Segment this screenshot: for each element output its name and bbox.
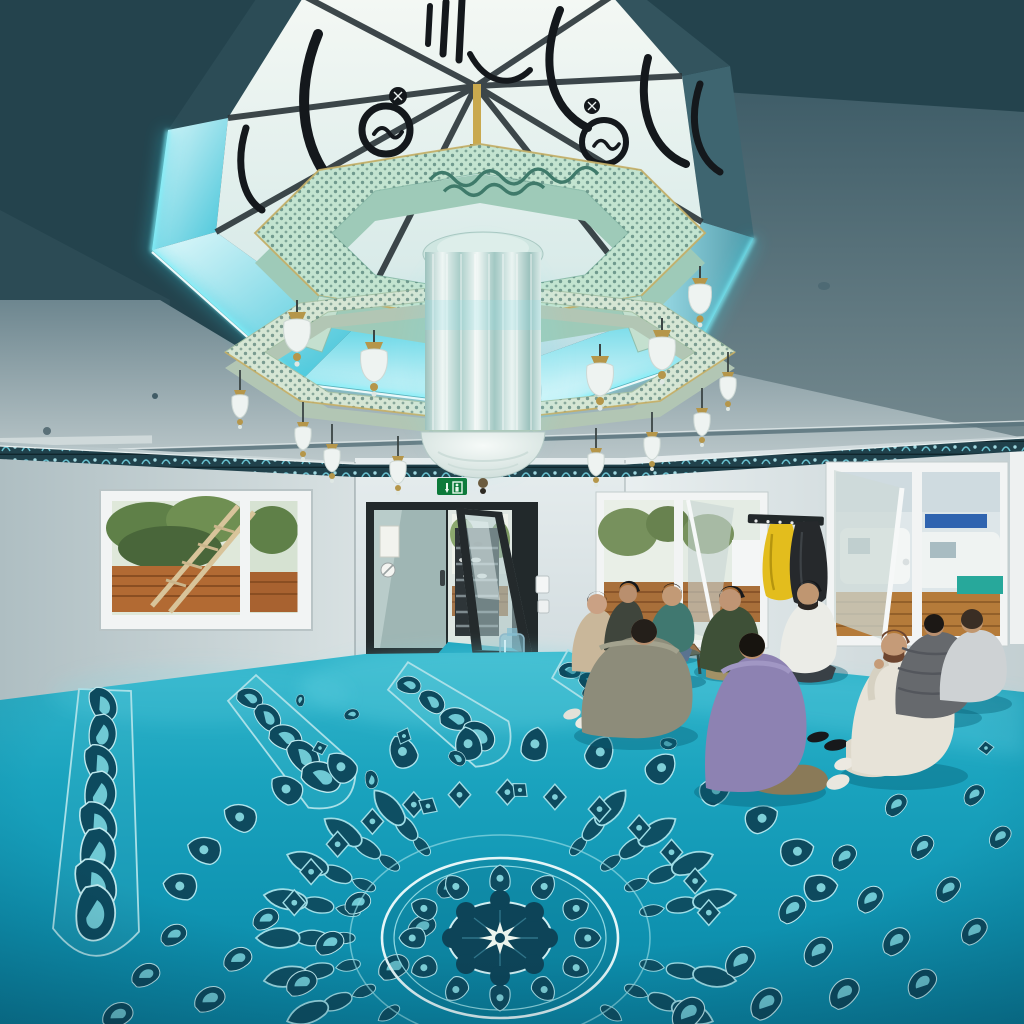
ceiling-sprinkler xyxy=(818,282,830,290)
crystal-column xyxy=(405,232,561,494)
right-windows xyxy=(826,452,1024,646)
chandelier xyxy=(225,144,736,495)
light-switch[interactable] xyxy=(536,576,549,593)
ceiling-spot-2 xyxy=(152,393,158,399)
door-paper-sign xyxy=(380,526,399,557)
wall-socket xyxy=(538,600,549,613)
entrance-door xyxy=(366,478,549,668)
van-through-window xyxy=(732,540,760,586)
window-handle[interactable] xyxy=(903,559,910,566)
mosque-interior-photo xyxy=(0,0,1024,1024)
photo-stage xyxy=(0,0,1024,1024)
far-right-window-sliver xyxy=(1010,452,1024,644)
ceiling-spot-1 xyxy=(43,427,51,435)
left-window xyxy=(100,490,312,630)
door-handle[interactable] xyxy=(440,570,445,586)
left-window-mullion xyxy=(240,501,250,615)
dome-finial xyxy=(478,478,488,488)
